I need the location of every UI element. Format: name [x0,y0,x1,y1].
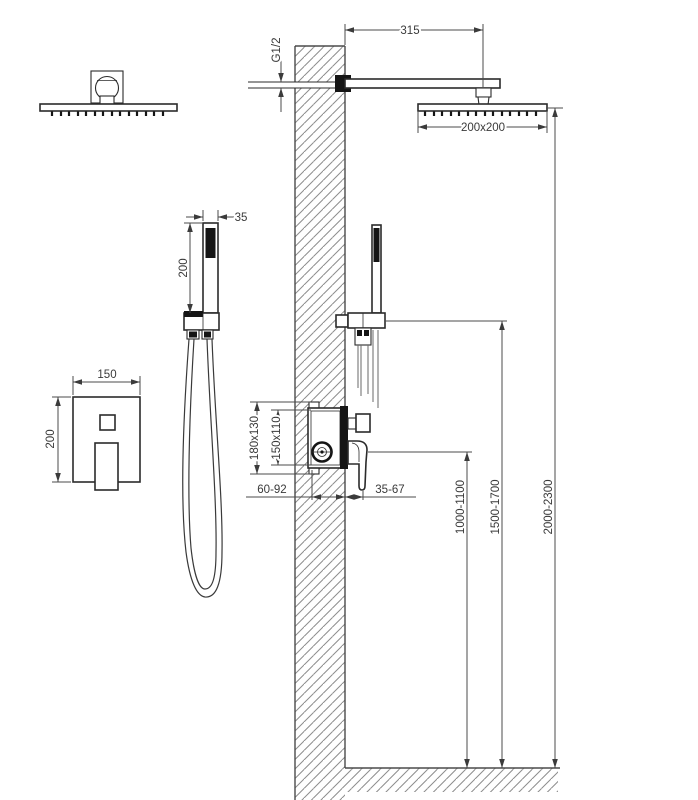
rain-head-top-view [40,71,177,116]
valve-face [340,406,348,469]
dim-valve-inner-label: 150x110 [271,416,283,459]
diverter-stem [348,418,356,429]
rain-head-nozzles [425,112,536,117]
dim-handshower-length: 200 [178,223,202,313]
rain-head-plate [418,104,547,111]
dim-valve-depth-label: 60-92 [257,484,286,496]
dim-inlet-thread: G1/2 [271,38,284,112]
head-neck [100,96,114,104]
diverter-knob-side [356,414,370,432]
dim-mixer-mount-height: 1000-1100 [368,452,472,768]
holder-wall-pin [336,315,348,327]
dim-handshower-length-label: 200 [178,258,190,277]
shower-arm-assembly [248,75,547,116]
dim-handshower-width-label: 35 [235,212,248,224]
diverter-button [100,415,115,430]
hand-shower-front-view [184,223,219,339]
dim-handshower-width: 35 [186,210,247,224]
dim-mixer-height: 200 [45,397,71,482]
diagram-svg: 315 G1/2 200x200 35 200 [0,0,698,800]
dim-mixer-height-label: 200 [45,429,57,448]
dim-arm-length: 315 [345,24,483,87]
dim-head-size-label: 200x200 [461,122,505,134]
head-nozzles [52,112,163,117]
mixer-lever-side [348,441,367,490]
mixer-lever [95,443,118,490]
dim-holder-height: 1500-1700 [385,321,507,768]
hand-shower-sprayface [206,228,216,258]
dim-head-height: 2000-2300 [543,108,563,768]
dim-trim-depth-label: 35-67 [375,484,404,496]
dim-arm-length-label: 315 [400,25,419,37]
floor-hatch [345,768,558,792]
dim-mixer-width: 150 [73,369,140,395]
arm-connector [476,88,491,97]
wall-holder-bracket [348,313,385,328]
shower-arm [345,79,500,88]
installation-diagram: 315 G1/2 200x200 35 200 [0,0,698,800]
mixer-trim-front-view [73,397,140,490]
dim-head-height-label: 2000-2300 [543,480,555,535]
dim-mixer-mount-height-label: 1000-1100 [455,480,467,534]
dim-inlet-thread-label: G1/2 [271,38,283,63]
dim-mixer-width-label: 150 [97,369,116,381]
head-plate [40,104,177,111]
hand-shower-hose [183,339,222,597]
dim-holder-height-label: 1500-1700 [490,480,502,535]
dim-valve-outer-label: 180x130 [249,416,261,460]
floor-section [345,768,560,792]
